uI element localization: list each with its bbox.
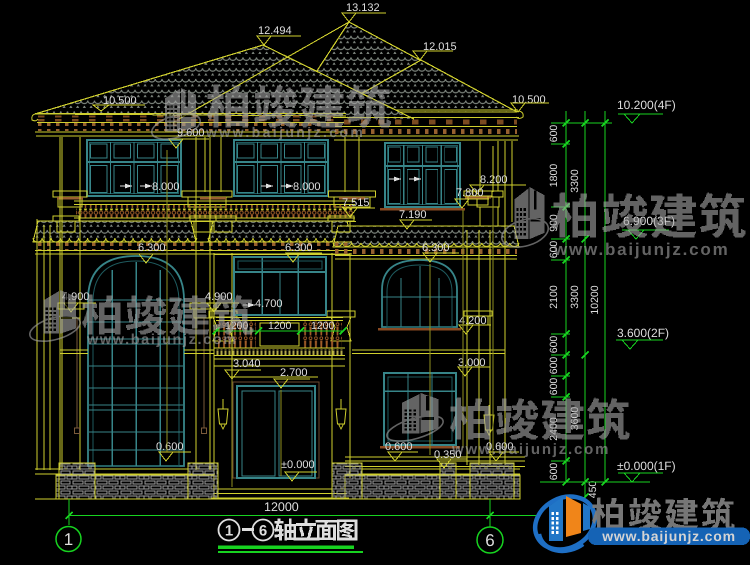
svg-text:1: 1 — [225, 523, 233, 540]
svg-text:600: 600 — [548, 378, 560, 396]
svg-text:0.600: 0.600 — [156, 441, 184, 453]
svg-text:2100: 2100 — [548, 285, 560, 309]
svg-text:6: 6 — [259, 523, 267, 540]
svg-text:4.700: 4.700 — [255, 298, 283, 310]
svg-text:3.600(2F): 3.600(2F) — [617, 326, 669, 340]
svg-text:8.000: 8.000 — [293, 181, 321, 193]
svg-text:0.600: 0.600 — [385, 441, 413, 453]
svg-text:600: 600 — [548, 463, 560, 481]
svg-text:www.baijunjz.com: www.baijunjz.com — [553, 240, 730, 259]
svg-text:450: 450 — [587, 481, 599, 499]
svg-text:7.515: 7.515 — [342, 197, 370, 209]
svg-text:www.baijunjz.com: www.baijunjz.com — [205, 124, 365, 140]
svg-text:7.800: 7.800 — [456, 187, 484, 199]
svg-text:12000: 12000 — [264, 500, 299, 514]
svg-text:13.132: 13.132 — [346, 2, 380, 14]
svg-text:±0.000(1F): ±0.000(1F) — [617, 459, 676, 473]
svg-text:10.200(4F): 10.200(4F) — [617, 98, 676, 112]
svg-text:600: 600 — [548, 357, 560, 375]
svg-text:10200: 10200 — [589, 285, 601, 314]
svg-text:www.baijunjz.com: www.baijunjz.com — [451, 441, 610, 458]
svg-text:3300: 3300 — [569, 285, 581, 309]
svg-text:1800: 1800 — [548, 164, 560, 188]
svg-text:±0.000: ±0.000 — [281, 459, 315, 471]
svg-text:600: 600 — [548, 125, 560, 143]
svg-text:8.200: 8.200 — [480, 174, 508, 186]
svg-text:3300: 3300 — [569, 169, 581, 193]
svg-text:6.300: 6.300 — [285, 242, 313, 254]
svg-text:2.700: 2.700 — [280, 367, 308, 379]
svg-text:1200: 1200 — [268, 320, 292, 332]
svg-text:3.040: 3.040 — [233, 358, 261, 370]
svg-text:1: 1 — [64, 530, 73, 549]
svg-text:1200: 1200 — [311, 320, 335, 332]
svg-text:600: 600 — [548, 336, 560, 354]
svg-text:6.300: 6.300 — [422, 242, 450, 254]
svg-text:6.300: 6.300 — [138, 242, 166, 254]
svg-text:www.baijunjz.com: www.baijunjz.com — [601, 528, 736, 544]
svg-text:10.500: 10.500 — [512, 94, 546, 106]
svg-text:8.000: 8.000 — [152, 181, 180, 193]
svg-text:12.494: 12.494 — [258, 25, 292, 37]
svg-text:7.190: 7.190 — [399, 209, 427, 221]
svg-text:www.baijunjz.com: www.baijunjz.com — [86, 332, 238, 348]
svg-text:6: 6 — [485, 531, 494, 550]
